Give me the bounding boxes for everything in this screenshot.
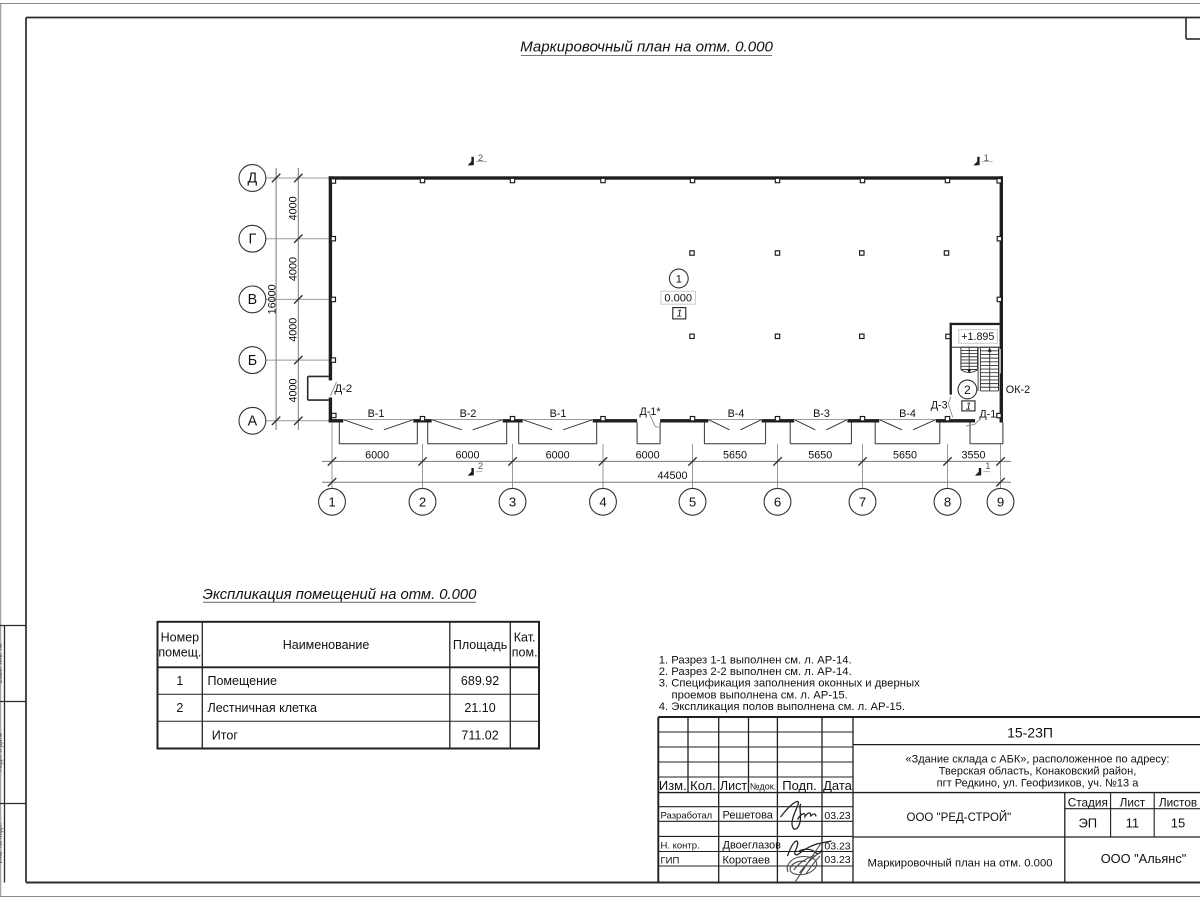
svg-text:9: 9 bbox=[997, 495, 1004, 510]
svg-text:Лестничная клетка: Лестничная клетка bbox=[208, 701, 318, 715]
svg-text:03.23: 03.23 bbox=[824, 854, 850, 866]
svg-text:6000: 6000 bbox=[455, 450, 479, 462]
svg-text:пом.: пом. bbox=[512, 646, 538, 660]
svg-text:Наименование: Наименование bbox=[283, 638, 370, 652]
svg-text:ГИП: ГИП bbox=[661, 855, 680, 866]
svg-text:4000: 4000 bbox=[288, 257, 300, 281]
svg-text:Решетова: Решетова bbox=[723, 809, 774, 821]
svg-text:Лист: Лист bbox=[1120, 796, 1146, 810]
svg-text:Разработал: Разработал bbox=[661, 810, 713, 821]
svg-text:711.02: 711.02 bbox=[461, 728, 498, 742]
svg-text:В-2: В-2 bbox=[460, 408, 477, 420]
svg-text:Г: Г bbox=[249, 231, 257, 247]
svg-text:689.92: 689.92 bbox=[461, 674, 499, 688]
svg-text:Изм.: Изм. bbox=[659, 778, 687, 793]
svg-text:0.000: 0.000 bbox=[664, 293, 692, 305]
svg-text:1: 1 bbox=[985, 461, 990, 472]
svg-text:Дата: Дата bbox=[823, 778, 853, 793]
svg-text:2: 2 bbox=[964, 383, 971, 397]
svg-text:Подп.: Подп. bbox=[782, 778, 817, 793]
svg-text:4. Экспликация полов выполнена: 4. Экспликация полов выполнена см. л. АР… bbox=[659, 701, 905, 713]
svg-text:Взам. инв. №: Взам. инв. № bbox=[0, 643, 4, 683]
svg-text:6000: 6000 bbox=[546, 450, 570, 462]
svg-text:7: 7 bbox=[859, 495, 866, 510]
svg-text:15: 15 bbox=[1171, 816, 1185, 831]
svg-text:4: 4 bbox=[599, 495, 606, 510]
svg-text:2: 2 bbox=[478, 153, 483, 164]
svg-text:21.10: 21.10 bbox=[464, 701, 495, 715]
svg-text:Экспликация помещений на отм.: Экспликация помещений на отм. 0.000 bbox=[203, 587, 477, 603]
svg-text:6000: 6000 bbox=[365, 450, 389, 462]
svg-text:Итог: Итог bbox=[212, 728, 239, 742]
svg-text:Номер: Номер bbox=[161, 631, 200, 645]
svg-text:1: 1 bbox=[676, 308, 682, 320]
svg-text:пгт Редкино, ул. Геофизиков, у: пгт Редкино, ул. Геофизиков, уч. №13 а bbox=[937, 778, 1140, 790]
svg-text:Д: Д bbox=[248, 171, 258, 187]
svg-text:Стадия: Стадия bbox=[1068, 796, 1108, 810]
svg-text:2: 2 bbox=[176, 701, 183, 715]
svg-text:5650: 5650 bbox=[808, 450, 832, 462]
svg-text:3: 3 bbox=[509, 495, 516, 510]
svg-text:Маркировочный план на отм. 0.0: Маркировочный план на отм. 0.000 bbox=[867, 857, 1052, 869]
svg-text:2. Разрез 2-2 выполнен см. л.: 2. Разрез 2-2 выполнен см. л. АР-14. bbox=[659, 666, 852, 678]
svg-text:В-1: В-1 bbox=[368, 408, 385, 420]
svg-text:4000: 4000 bbox=[288, 196, 300, 220]
svg-text:В-4: В-4 bbox=[728, 408, 745, 420]
svg-text:В: В bbox=[248, 292, 258, 308]
svg-text:Д-2: Д-2 bbox=[335, 383, 353, 395]
svg-text:Маркировочный план на отм. 0.0: Маркировочный план на отм. 0.000 bbox=[520, 39, 773, 56]
svg-text:Д-3: Д-3 bbox=[931, 399, 948, 411]
svg-text:Площадь: Площадь bbox=[453, 638, 507, 652]
svg-text:15-23П: 15-23П bbox=[1007, 725, 1053, 741]
svg-text:ООО "РЕД-СТРОЙ": ООО "РЕД-СТРОЙ" bbox=[907, 811, 1012, 824]
svg-text:Д-1: Д-1 bbox=[979, 408, 996, 420]
svg-text:Листов: Листов bbox=[1159, 796, 1197, 810]
svg-text:1: 1 bbox=[984, 153, 989, 164]
svg-text:ЭП: ЭП bbox=[1078, 816, 1097, 831]
svg-text:Тверская область, Конаковский: Тверская область, Конаковский район, bbox=[939, 766, 1137, 778]
svg-text:1: 1 bbox=[966, 401, 972, 412]
svg-text:ОК-2: ОК-2 bbox=[1006, 384, 1030, 396]
svg-text:А: А bbox=[248, 414, 258, 430]
svg-text:№док.: №док. bbox=[750, 782, 776, 792]
svg-text:проемов выполнена см. л. АР-15: проемов выполнена см. л. АР-15. bbox=[672, 689, 848, 701]
svg-text:2: 2 bbox=[478, 461, 483, 472]
svg-text:16000: 16000 bbox=[267, 284, 279, 314]
svg-text:1: 1 bbox=[328, 495, 335, 510]
svg-text:6: 6 bbox=[774, 495, 781, 510]
svg-text:5: 5 bbox=[689, 495, 696, 510]
svg-text:В-4: В-4 bbox=[899, 408, 916, 420]
svg-text:6000: 6000 bbox=[636, 450, 660, 462]
svg-text:Инв. № подл.: Инв. № подл. bbox=[0, 823, 4, 864]
svg-text:2: 2 bbox=[419, 495, 426, 510]
svg-text:1. Разрез 1-1 выполнен см. л.: 1. Разрез 1-1 выполнен см. л. АР-14. bbox=[659, 654, 852, 666]
svg-text:1: 1 bbox=[176, 674, 183, 688]
svg-text:Кат.: Кат. bbox=[514, 631, 536, 645]
svg-text:5650: 5650 bbox=[893, 450, 917, 462]
svg-text:3. Спецификация заполнения око: 3. Спецификация заполнения оконных и две… bbox=[659, 678, 920, 690]
svg-text:+1.895: +1.895 bbox=[961, 331, 994, 343]
svg-text:11: 11 bbox=[1126, 816, 1140, 831]
svg-text:«Здание склада с АБК», располо: «Здание склада с АБК», расположенное по … bbox=[906, 754, 1170, 766]
svg-text:3550: 3550 bbox=[961, 450, 985, 462]
svg-text:Б: Б bbox=[248, 353, 257, 369]
svg-text:Кол.: Кол. bbox=[690, 778, 716, 793]
svg-text:03.23: 03.23 bbox=[824, 810, 850, 822]
svg-text:Помещение: Помещение bbox=[208, 674, 277, 688]
svg-text:В-3: В-3 bbox=[813, 408, 830, 420]
svg-text:4000: 4000 bbox=[288, 378, 300, 402]
svg-text:помещ.: помещ. bbox=[158, 646, 201, 660]
svg-text:8: 8 bbox=[944, 495, 951, 510]
svg-text:4000: 4000 bbox=[288, 318, 300, 342]
svg-text:Лист: Лист bbox=[720, 779, 747, 793]
svg-text:1: 1 bbox=[676, 273, 682, 285]
svg-text:В-1: В-1 bbox=[550, 408, 567, 420]
svg-text:Двоеглазов: Двоеглазов bbox=[723, 839, 782, 851]
svg-text:Н. контр.: Н. контр. bbox=[661, 840, 700, 851]
svg-text:Коротаев: Коротаев bbox=[723, 854, 771, 866]
svg-text:5650: 5650 bbox=[723, 450, 747, 462]
svg-text:44500: 44500 bbox=[657, 470, 687, 482]
svg-text:ООО "Альянс": ООО "Альянс" bbox=[1101, 851, 1187, 866]
svg-text:Подп. и дата: Подп. и дата bbox=[0, 733, 4, 772]
